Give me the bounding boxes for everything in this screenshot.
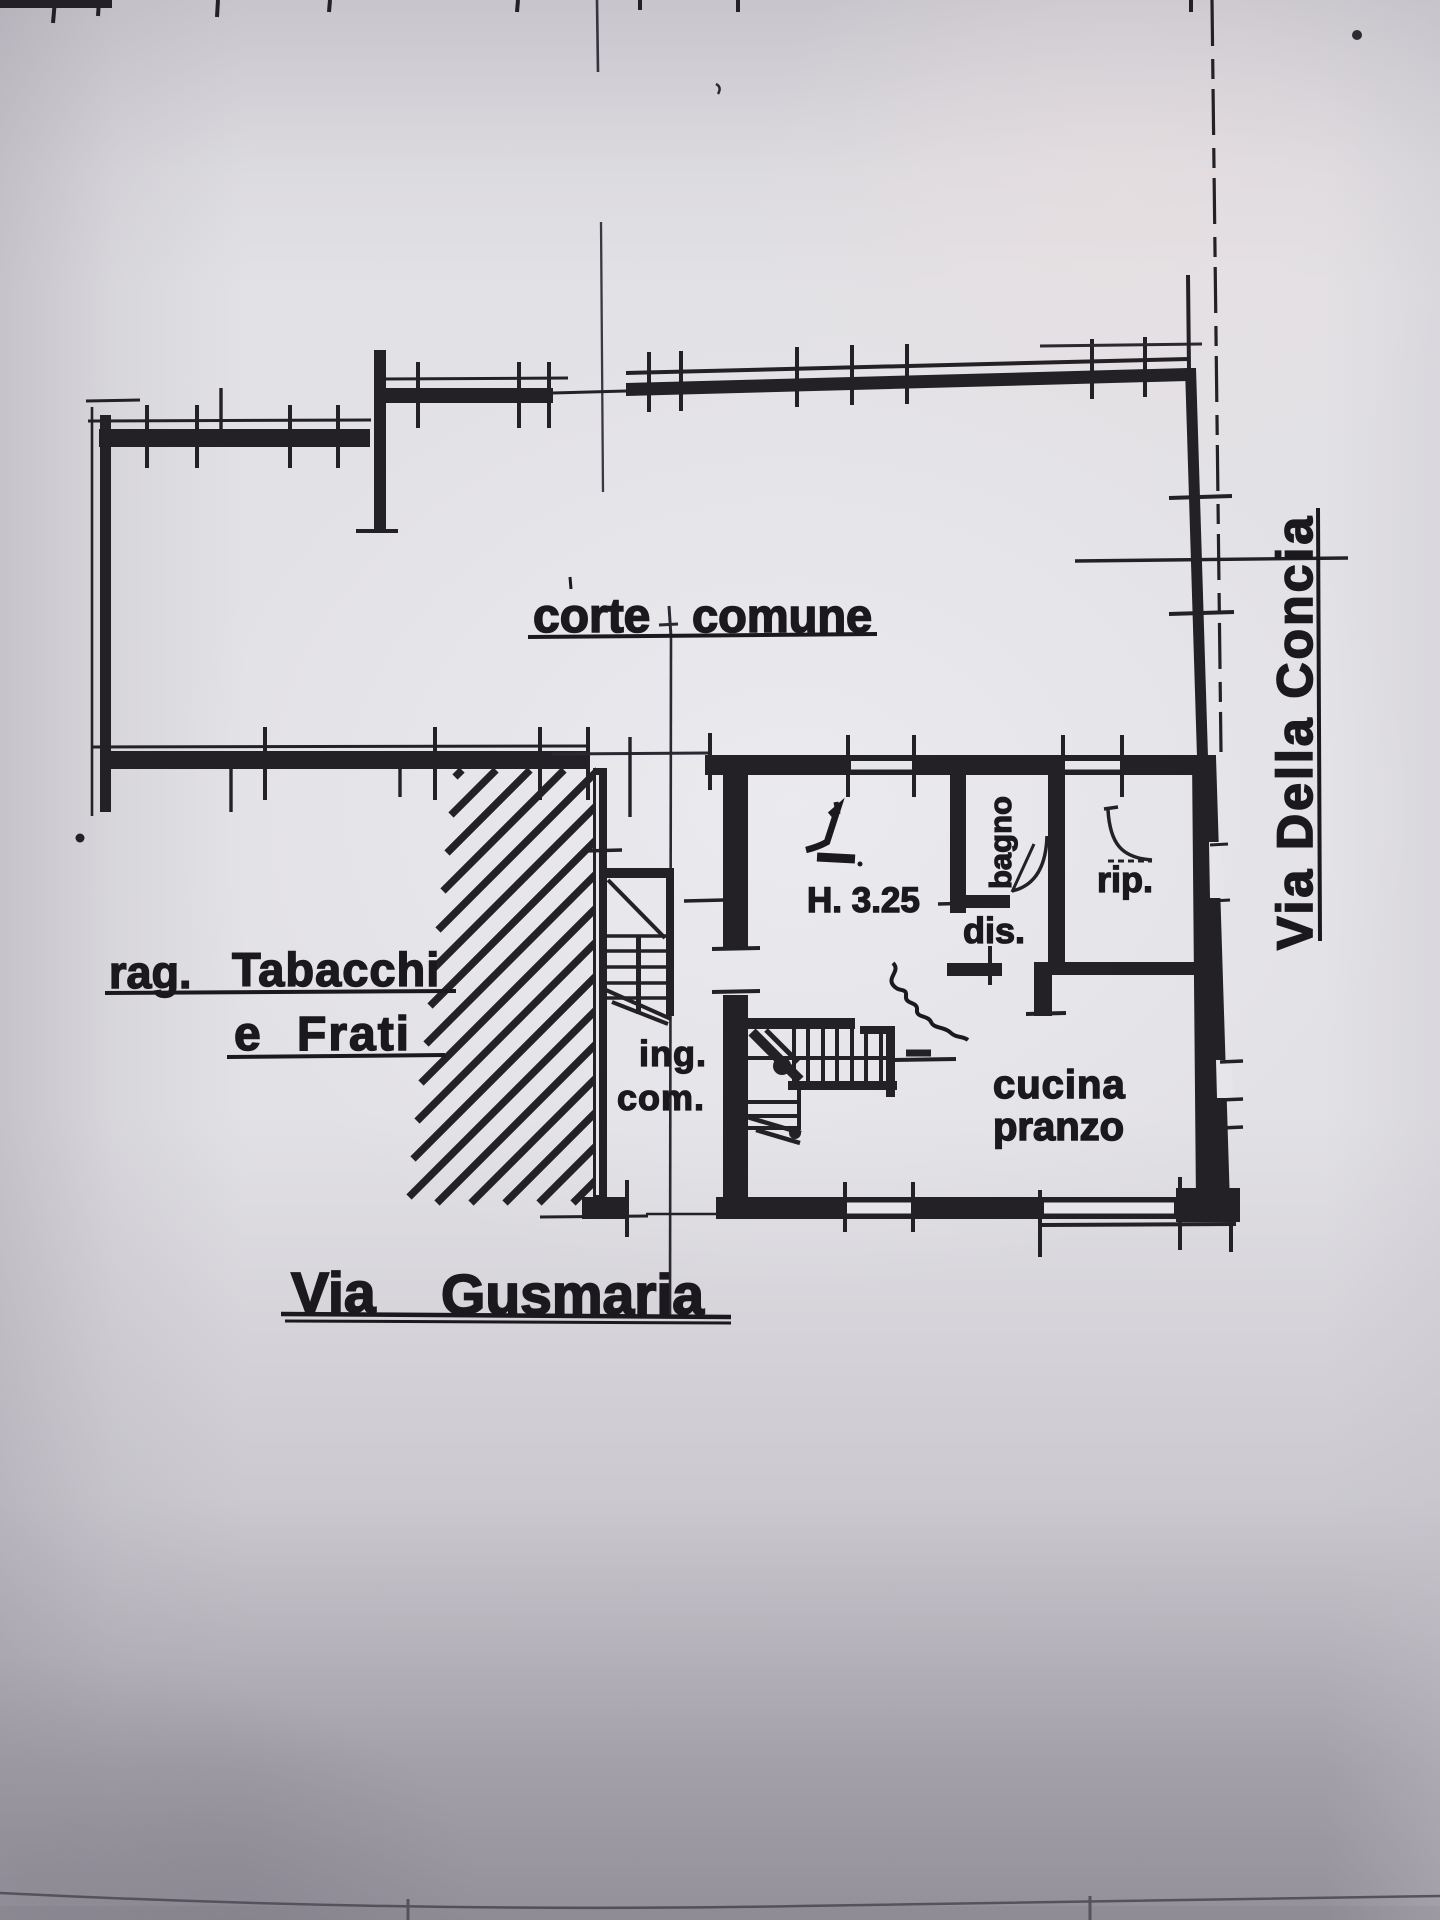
svg-text:bagno: bagno <box>983 796 1018 889</box>
svg-text:rip.: rip. <box>1097 859 1153 900</box>
svg-text:H. 3.25: H. 3.25 <box>807 881 920 920</box>
svg-text:rag.: rag. <box>109 947 192 998</box>
svg-text:pranzo: pranzo <box>993 1105 1124 1149</box>
svg-text:Tabacchi: Tabacchi <box>232 943 440 996</box>
svg-text:cucina: cucina <box>993 1063 1126 1107</box>
svg-text:Frati: Frati <box>297 1008 411 1061</box>
svg-text:Via Della Concia: Via Della Concia <box>1267 514 1323 950</box>
svg-text:ing.: ing. <box>639 1033 707 1074</box>
svg-text:e: e <box>234 1008 261 1061</box>
svg-text:dis.: dis. <box>963 910 1025 951</box>
svg-text:com.: com. <box>617 1077 705 1118</box>
